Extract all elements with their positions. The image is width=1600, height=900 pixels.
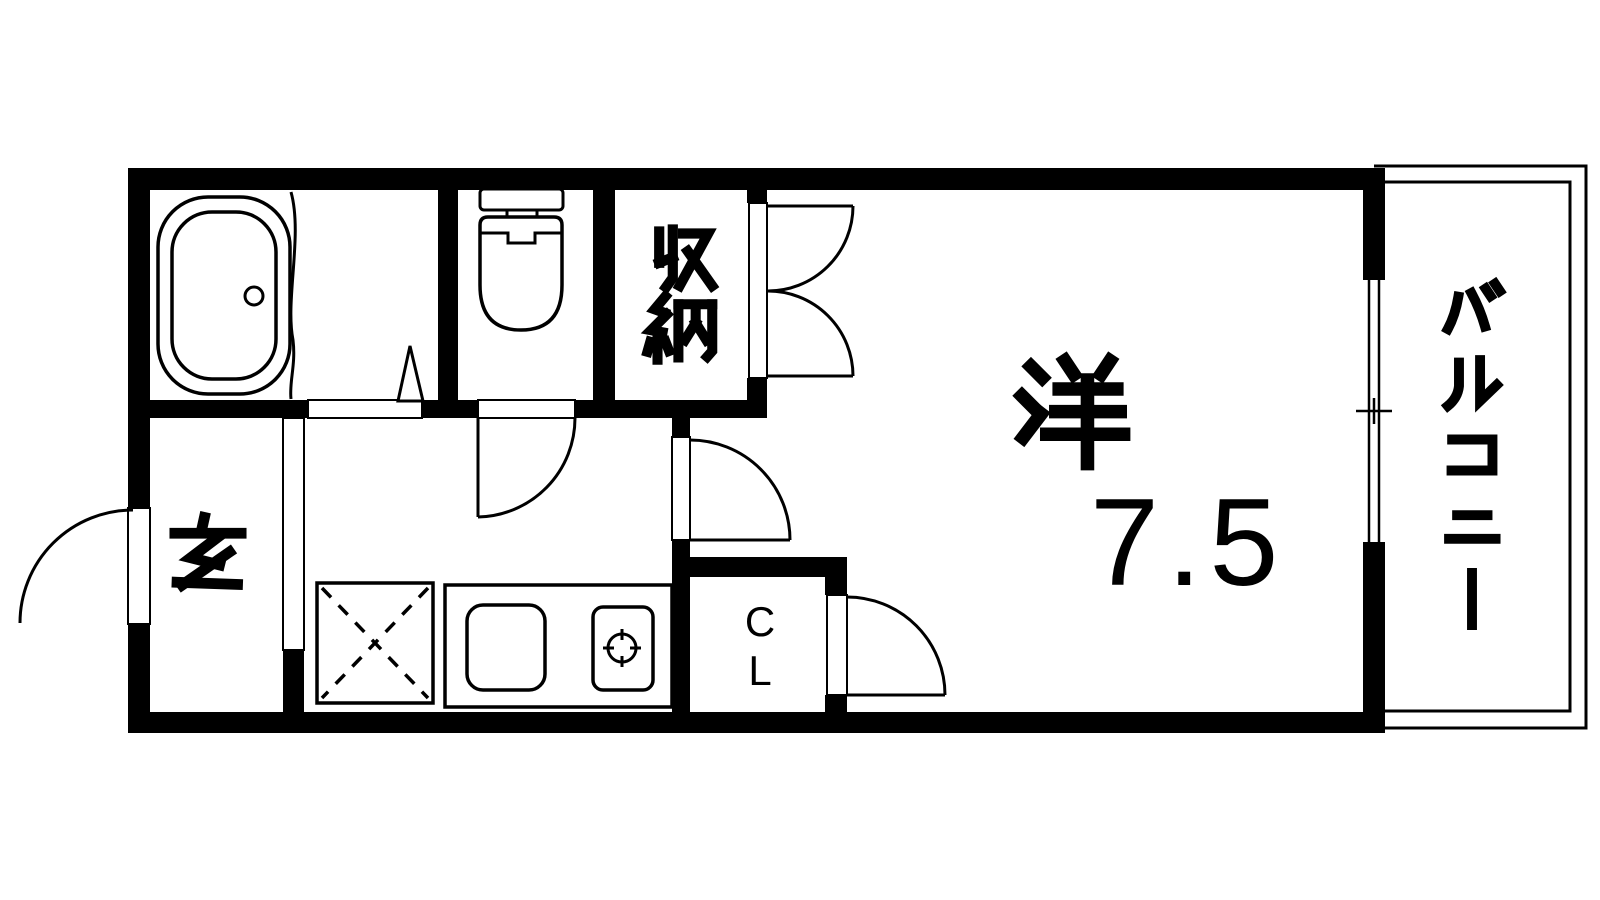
balcony-glyph-ba [1448, 284, 1500, 329]
wall-left-upper [128, 168, 150, 508]
entrance-label-glyph [175, 517, 241, 585]
wall-mid-a [150, 400, 308, 418]
wall-bottom [128, 712, 1385, 733]
floor-plan-drawing [0, 0, 1600, 900]
stove-burner-icon [593, 607, 653, 690]
storage-doorway [749, 203, 767, 378]
bath-partition-curve [291, 192, 296, 399]
wall-bath-toilet [438, 190, 458, 402]
entrance-door-swing [20, 510, 133, 623]
wall-kitchen-room-lower [672, 540, 690, 712]
wall-closet-top [690, 557, 847, 577]
entrance-door-leaf [128, 508, 150, 624]
refrigerator-x-icon [317, 583, 433, 703]
wall-top [128, 168, 1385, 190]
doorway-strips [128, 203, 847, 695]
sliding-window-icon [1356, 280, 1392, 542]
bath-doorway [308, 400, 422, 418]
western-room-size-label: 7.5 [1090, 481, 1286, 605]
balcony-label-glyphs [1448, 284, 1500, 625]
wall-storage-right-cap [747, 188, 767, 203]
balcony-glyph-ru [1448, 360, 1497, 406]
floor-plan-canvas: 7.5 CL 玄 収納 洋 バルコニー [0, 0, 1600, 900]
storage-double-door [767, 206, 853, 376]
wall-closet-right-b [825, 695, 847, 712]
closet-doorway [827, 595, 847, 695]
balcony-glyph-ko [1452, 440, 1493, 471]
wall-kitchen-room-cap [672, 418, 690, 437]
wall-mid-c [575, 400, 767, 418]
storage-label-glyph-1 [659, 229, 712, 287]
toilet-door-swing [478, 418, 575, 517]
wall-storage-right-base [747, 378, 767, 418]
wall-mid-b [422, 400, 478, 418]
room-doorway [672, 437, 690, 540]
kitchen-sink-icon [467, 605, 545, 690]
toilet-icon [480, 189, 563, 330]
balcony-outline [1374, 166, 1586, 728]
entrance-partition [283, 418, 304, 650]
wall-toilet-storage [593, 190, 615, 402]
wall-closet-right-a [825, 577, 847, 595]
wall-right-lower [1363, 542, 1385, 733]
toilet-doorway [478, 400, 575, 418]
wall-right-upper [1363, 168, 1385, 280]
kitchen-counter [445, 585, 672, 707]
closet-door-swing [847, 597, 945, 695]
western-room-label-glyph [1022, 361, 1124, 464]
closet-label: CL [743, 597, 777, 695]
bathtub-icon [158, 192, 295, 399]
room-door-swing [690, 440, 790, 540]
bath-door-triangle-icon [398, 346, 423, 401]
storage-label-glyph-2 [647, 296, 712, 359]
balcony-glyph-ni [1449, 515, 1496, 539]
wall-entrance-kitchen [283, 650, 304, 712]
